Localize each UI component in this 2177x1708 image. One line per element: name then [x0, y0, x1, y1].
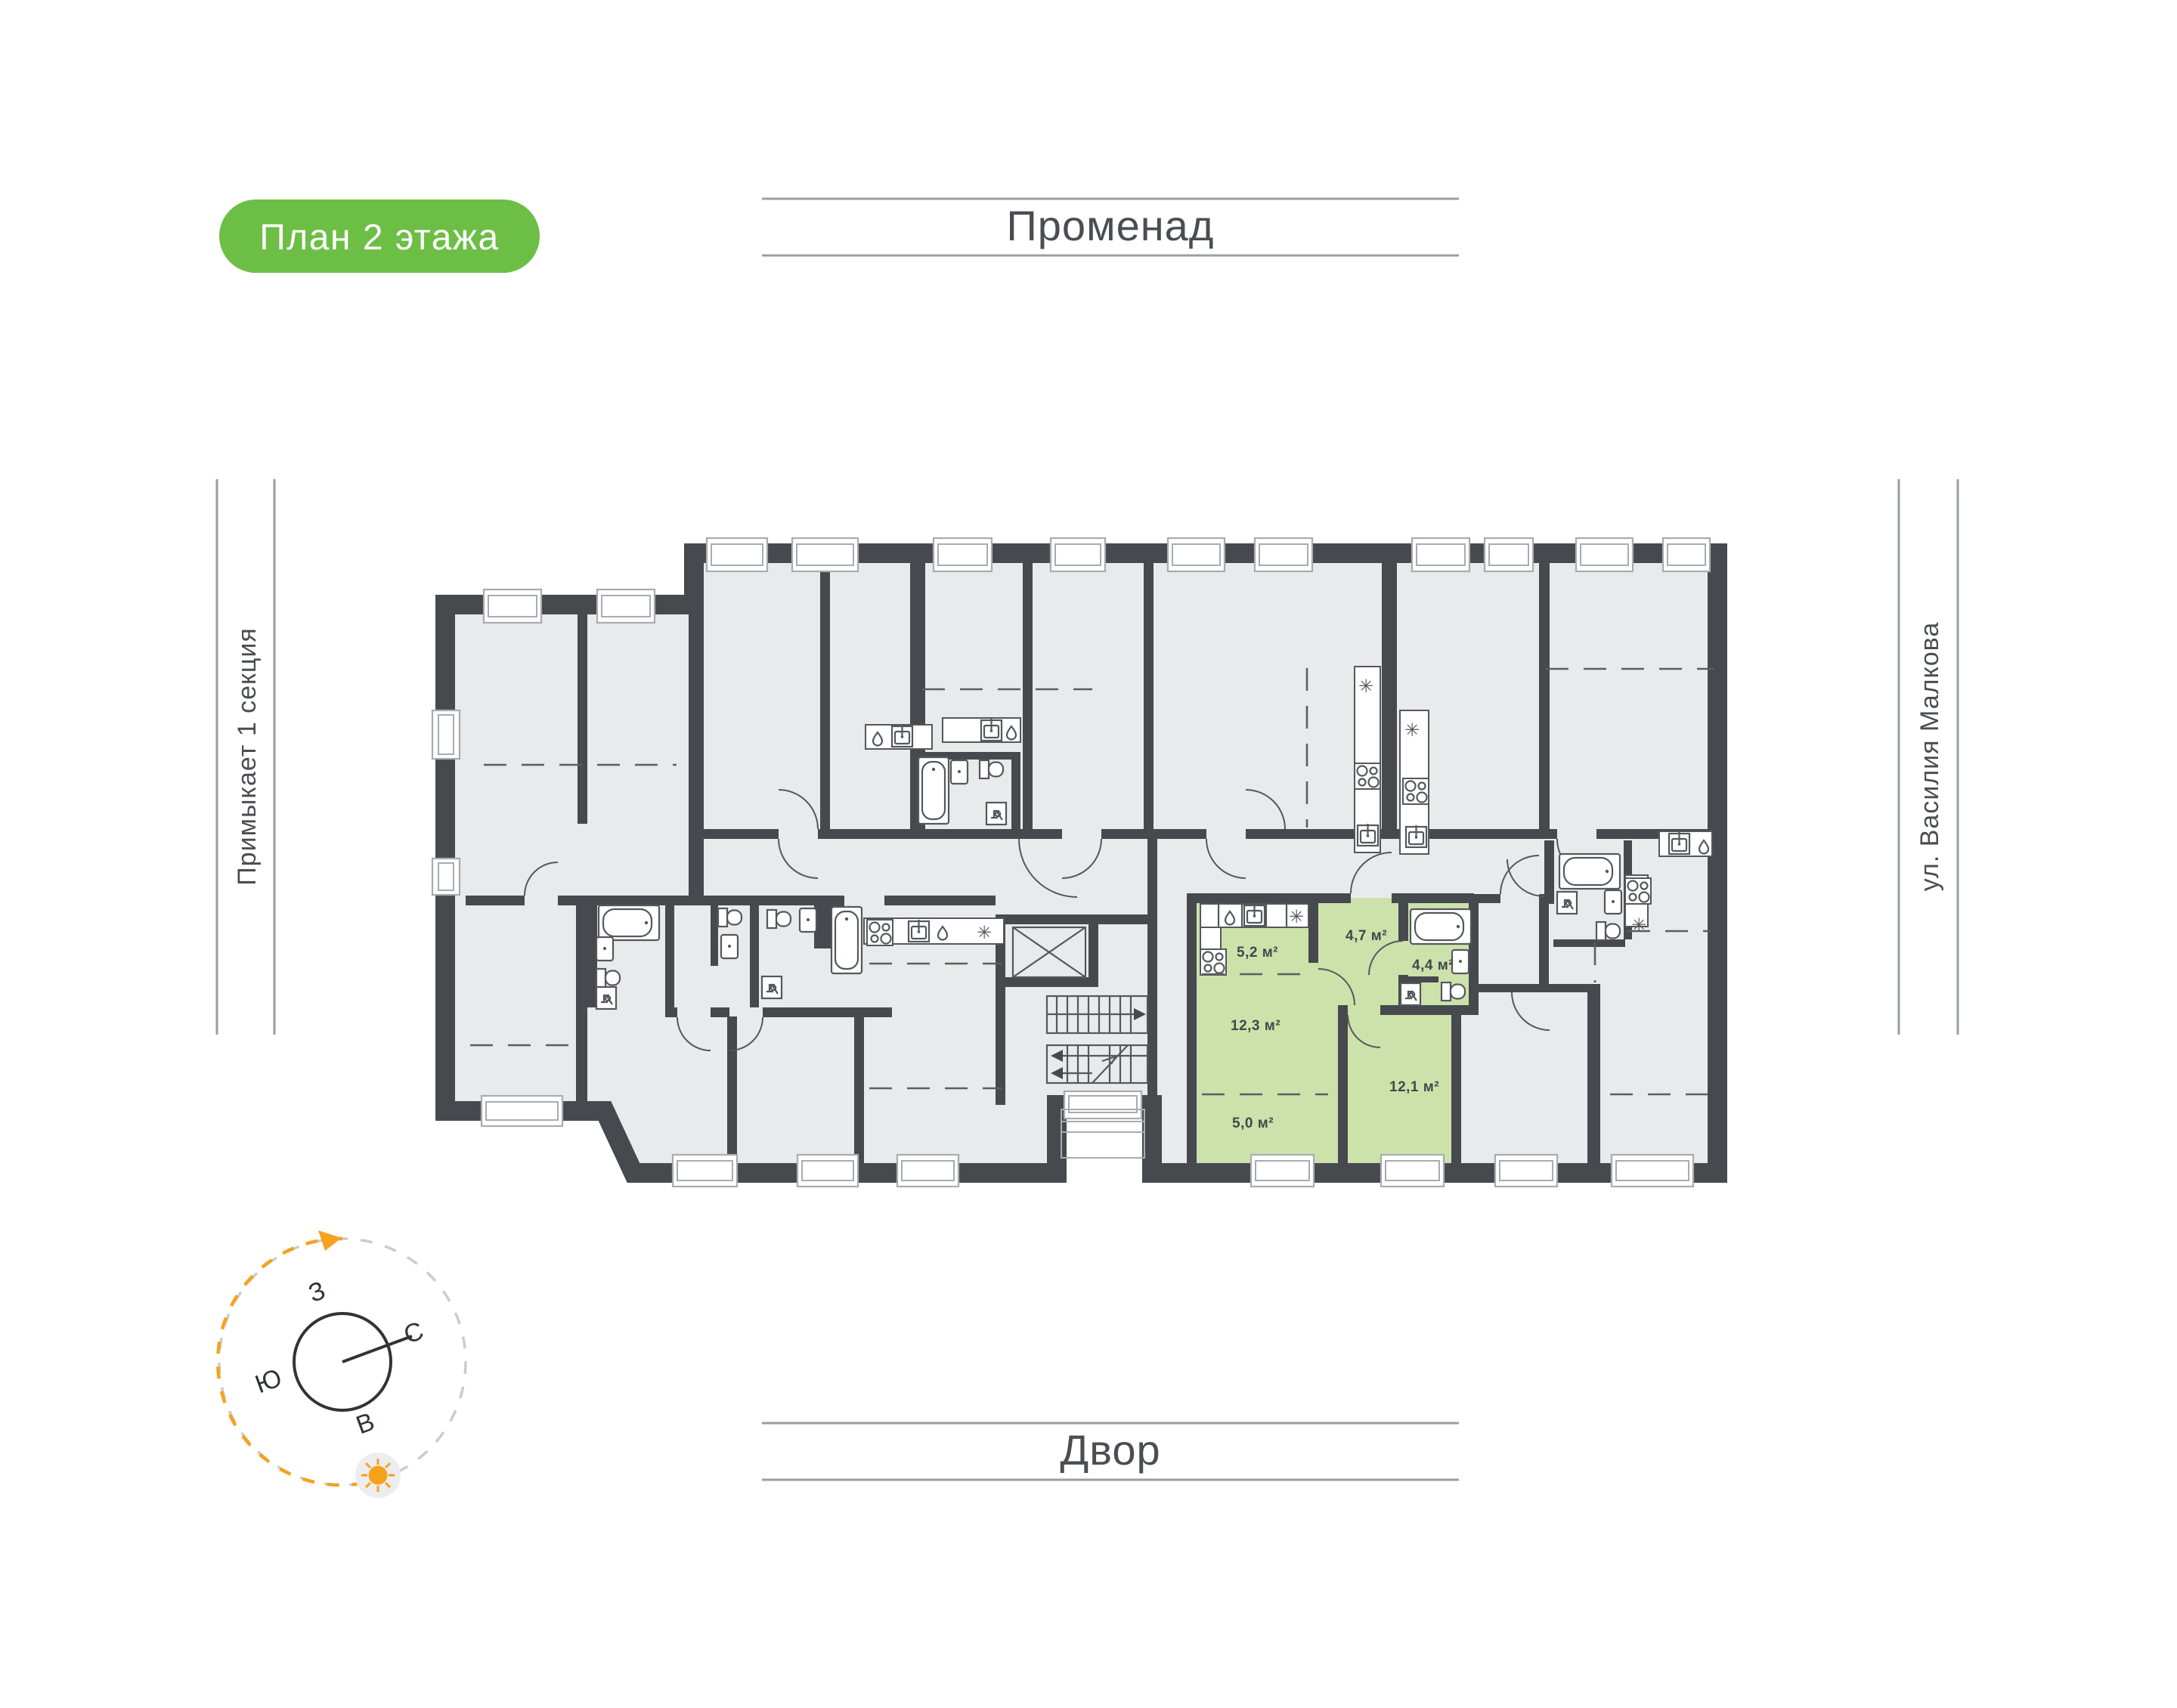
stove-icon — [1355, 763, 1380, 789]
bathtub-icon — [831, 907, 862, 973]
kitchen-sink-icon — [1358, 824, 1378, 846]
washing-machine-icon — [1401, 983, 1420, 1005]
floor-badge-label: План 2 этажа — [259, 218, 499, 258]
compass-west: З — [305, 1276, 329, 1308]
washing-machine-icon — [596, 987, 616, 1009]
snowflake-icon: ✳ — [1289, 906, 1304, 927]
compass-north: С — [400, 1317, 427, 1350]
bath-sink-icon — [596, 937, 613, 961]
kitchen-sink-icon — [1406, 825, 1426, 847]
room-area-label: 5,2 м² — [1237, 945, 1278, 961]
stove-icon — [1200, 949, 1226, 975]
street-malkova-label: ул. Василия Малкова — [1915, 622, 1944, 891]
sun-path-arrow-icon — [318, 1230, 342, 1251]
snowflake-icon: ✳ — [1358, 676, 1373, 697]
kitchen-sink-icon — [892, 725, 912, 747]
toilet-icon — [596, 969, 620, 987]
adjacent-section-label: Примыкает 1 секция — [233, 627, 262, 886]
bath-sink-icon — [800, 908, 816, 932]
snowflake-icon: ✳ — [977, 922, 992, 943]
toilet-icon — [718, 908, 742, 927]
snowflake-icon: ✳ — [1631, 914, 1646, 936]
toilet-icon — [1442, 982, 1465, 1001]
snowflake-icon: ✳ — [1404, 719, 1420, 741]
building-outline — [445, 553, 1717, 1173]
toilet-icon — [980, 760, 1003, 778]
bathtub-icon — [918, 757, 949, 824]
washing-machine-icon — [762, 976, 782, 998]
building-plan: ✳ ✳ ✳ — [432, 538, 1717, 1187]
bath-sink-icon — [951, 760, 968, 784]
floor-plan-page: Променад Двор Примыкает 1 секция ул. Вас… — [0, 0, 2177, 1708]
bath-sink-icon — [721, 935, 738, 958]
floor-badge[interactable]: План 2 этажа — [219, 200, 540, 273]
washing-machine-icon — [986, 803, 1006, 825]
yard-label: Двор — [1060, 1426, 1160, 1474]
compass-east: В — [352, 1407, 378, 1440]
stove-icon — [1403, 778, 1429, 804]
room-area-label: 4,7 м² — [1346, 928, 1387, 944]
toilet-icon — [767, 910, 791, 928]
bathtub-icon — [1559, 854, 1620, 889]
kitchen-sink-icon — [1669, 832, 1689, 854]
stove-icon — [867, 920, 893, 945]
kitchen-sink-icon — [981, 719, 1002, 741]
room-area-label: 4,4 м² — [1412, 958, 1454, 973]
room-area-label: 12,3 м² — [1231, 1018, 1280, 1034]
bath-sink-icon — [1452, 950, 1469, 973]
stove-icon — [1625, 878, 1651, 904]
washing-machine-icon — [1557, 892, 1577, 914]
kitchen-sink-icon — [909, 920, 929, 942]
room-area-label: 5,0 м² — [1232, 1115, 1274, 1131]
promenade-label: Променад — [1007, 202, 1215, 249]
bath-sink-icon — [1605, 890, 1621, 914]
sun-icon — [355, 1453, 401, 1498]
bathtub-icon — [599, 905, 659, 940]
toilet-icon — [1596, 922, 1620, 940]
kitchen-sink-icon — [1244, 904, 1265, 926]
compass-south: Ю — [252, 1363, 286, 1399]
compass: З С Ю В — [218, 1230, 466, 1498]
room-area-label: 12,1 м² — [1389, 1079, 1439, 1095]
bathtub-icon — [1411, 909, 1471, 944]
